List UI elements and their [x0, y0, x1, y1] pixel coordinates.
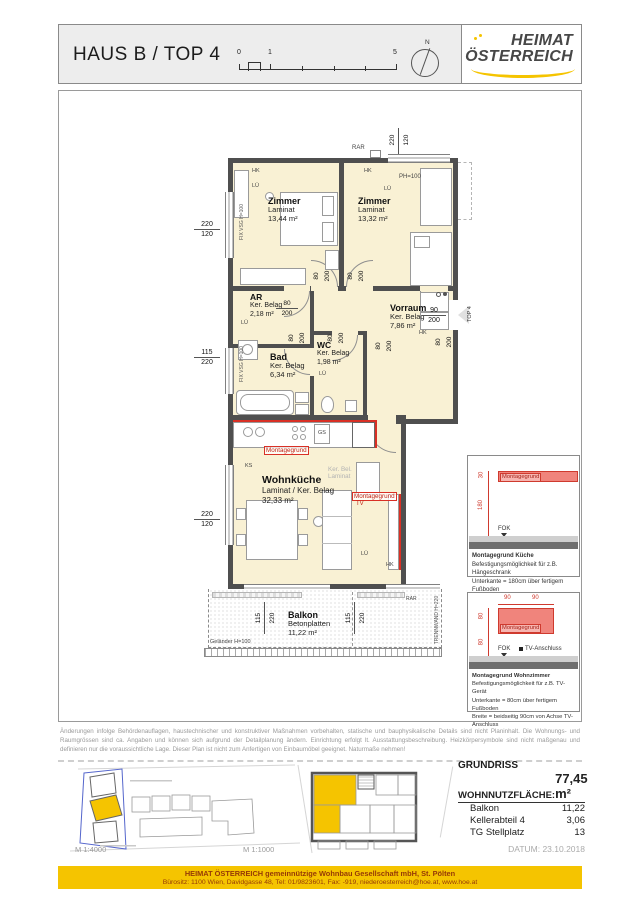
tv-outlet-label: TV-Anschluss	[525, 646, 562, 652]
dim-label: 220	[389, 131, 397, 149]
dim-line	[488, 471, 489, 536]
pillow	[322, 196, 334, 216]
room-label-vorraum: Vorraum Ker. Belag 7,86 m²	[390, 303, 426, 330]
dim-label: 220120	[194, 220, 220, 239]
fok-label: FOK	[498, 526, 510, 532]
dim-label: 220	[359, 609, 367, 627]
sofa-cushion-line	[322, 516, 352, 517]
window	[225, 192, 234, 258]
outlet-symbol	[443, 292, 447, 296]
dim-label: 115	[345, 609, 353, 627]
dim-label: 120	[403, 131, 411, 149]
floor-slab	[469, 662, 578, 669]
dim-label: 90	[504, 595, 511, 601]
dim-label: 80	[478, 639, 484, 646]
summary-row: Balkon11,22	[458, 803, 585, 815]
kitchen-sink	[243, 427, 253, 437]
room-label-wohnkueche: Wohnküche Laminat / Ker. Belag 32,33 m²	[262, 474, 334, 505]
rar-label: RAR	[352, 145, 365, 151]
dim-label: 80	[478, 613, 484, 620]
north-label: N	[425, 39, 430, 46]
neighbor-balcony-outline	[458, 162, 472, 220]
dim-label: 200	[386, 337, 394, 355]
footer-company: HEIMAT ÖSTERREICH gemeinnützige Wohnbau …	[58, 866, 582, 878]
logo-dot	[474, 37, 477, 40]
cabinet	[356, 462, 380, 495]
logo-dot	[479, 34, 482, 37]
montage-bar-label: Montagegrund	[500, 624, 541, 633]
scale-tick	[365, 66, 366, 71]
boundary-line	[440, 766, 453, 837]
balcony-railing	[204, 648, 442, 657]
window	[388, 154, 450, 163]
scale-tick	[239, 64, 240, 69]
dim-label: 80	[288, 329, 296, 347]
hk-label: HK	[386, 562, 394, 568]
washbasin	[295, 404, 309, 415]
dim-label: 80	[327, 329, 335, 347]
scale-tick	[334, 66, 335, 71]
dim-label: 220120	[194, 510, 220, 529]
title-block: HAUS B / TOP 4 0 1 5 N HEIMAT ÖSTERREICH	[58, 24, 582, 84]
ks-label: KS	[245, 463, 252, 469]
key-plan-drawing	[298, 765, 428, 857]
chair	[236, 534, 246, 546]
montage-bar-label: Montagegrund	[500, 473, 541, 482]
sofa-cushion-line	[322, 543, 352, 544]
scale-tick	[270, 64, 271, 69]
dim-label: 200	[358, 267, 366, 285]
montage-line-kitchen	[233, 420, 377, 422]
dim-label: 30	[478, 472, 484, 479]
dim-label: 220	[269, 609, 277, 627]
summary-box: GRUNDRISS WOHNNUTZFLÄCHE: 77,45 m² Balko…	[458, 760, 585, 839]
logo-line2: ÖSTERREICH	[465, 49, 573, 65]
small-basin	[345, 400, 357, 412]
date-label: DATUM: 23.10.2018	[508, 844, 585, 854]
dim-label: 200	[338, 329, 346, 347]
gs-label: GS	[318, 430, 326, 436]
scale-bar: 0 1 5	[239, 43, 404, 73]
railing-note: Geländer H=100	[210, 639, 251, 645]
chair	[298, 508, 308, 520]
disclaimer-text: Änderungen infolge Behördenauflagen, hau…	[60, 727, 580, 754]
entrance-opening	[449, 300, 458, 330]
hk-label: HK	[364, 168, 372, 174]
page-title: HAUS B / TOP 4	[73, 44, 220, 66]
dim-label: 90200	[422, 306, 446, 325]
entrance-marker-label: TOP 4	[466, 302, 474, 326]
scale-step	[248, 62, 261, 71]
north-arrow: N	[407, 39, 443, 79]
montage-line-kitchen-end	[375, 420, 377, 448]
dim-label: 80200	[276, 299, 298, 318]
fridge	[352, 422, 375, 448]
room-label-zimmer2: Zimmer Laminat 13,32 m²	[358, 196, 391, 223]
window-sill	[212, 592, 302, 598]
heimat-logo: HEIMAT ÖSTERREICH	[461, 25, 581, 83]
tv-label: TV	[356, 501, 364, 507]
scale-label-site: M 1:4000	[75, 845, 106, 854]
kitchen-sink	[255, 427, 265, 437]
sideboard	[240, 268, 306, 285]
wall-segment	[363, 331, 367, 417]
plan-sheet: HAUS B / TOP 4 0 1 5 N HEIMAT ÖSTERREICH	[0, 0, 637, 900]
panel-caption: Montagegrund Küche Befestigungsmöglichke…	[472, 552, 578, 595]
site-plan-map	[60, 763, 315, 858]
rar-label: RAR	[406, 596, 417, 602]
room-label-balkon: Balkon Betonplatten 11,22 m²	[288, 610, 330, 637]
dim-label: 200	[446, 333, 454, 351]
stove-burner	[300, 434, 306, 440]
summary-row: Kellerabteil 43,06	[458, 815, 585, 827]
north-circle	[411, 49, 439, 77]
partition-note: TRENNWAND H=220	[433, 589, 441, 651]
scale-baseline	[239, 69, 397, 70]
dim-line	[264, 602, 265, 634]
floor-slab	[469, 542, 578, 549]
bathtub-inner	[240, 394, 290, 411]
hk-label: HK	[419, 330, 427, 336]
logo-line1: HEIMAT	[511, 33, 573, 49]
montage-label-kitchen: Montagegrund	[264, 446, 309, 455]
vent-label: LÜ	[384, 186, 391, 192]
tv-sideboard	[388, 494, 399, 570]
glazing-note: FIX VSG H=100	[238, 196, 246, 248]
stove-burner	[300, 426, 306, 432]
dim-label: 80	[375, 337, 383, 355]
dim-label: 180	[478, 500, 484, 510]
vent-label: LÜ	[241, 320, 248, 326]
window-sill	[357, 592, 405, 598]
dim-label: 200	[324, 267, 332, 285]
washbasin	[295, 392, 309, 403]
tv-outlet-icon	[519, 647, 523, 651]
outlet-symbol	[436, 292, 441, 297]
window	[225, 348, 234, 394]
window	[225, 465, 234, 545]
dim-label: 80	[313, 267, 321, 285]
dim-label: 90	[532, 595, 539, 601]
ph-label: PH=100	[399, 174, 421, 180]
hk-label: HK	[252, 168, 260, 174]
floor-transition-note: Ker. Bel. Laminat	[328, 466, 352, 480]
dining-table	[246, 500, 298, 560]
living-area-row: WOHNNUTZFLÄCHE: 77,45 m²	[458, 771, 585, 803]
room-label-bad: Bad Ker. Belag 6,34 m²	[270, 352, 305, 379]
scale-label-5: 5	[393, 49, 397, 56]
dim-label: 115	[255, 609, 263, 627]
fok-label: FOK	[498, 646, 510, 652]
door-opening	[310, 348, 314, 376]
chair	[298, 534, 308, 546]
vent-label: LÜ	[319, 371, 326, 377]
dim-label: 80	[435, 333, 443, 351]
stove-burner	[292, 426, 298, 432]
dim-line	[398, 128, 399, 154]
wall-segment	[339, 163, 344, 288]
chair	[236, 508, 246, 520]
montage-line-tv	[399, 494, 401, 570]
stove-burner	[292, 434, 298, 440]
dim-line	[498, 604, 554, 605]
scale-label-0: 0	[237, 49, 241, 56]
scale-tick	[302, 66, 303, 71]
dim-line	[488, 608, 489, 656]
panel-caption: Montagegrund Wohnzimmer Befestigungsmögl…	[472, 672, 578, 729]
room-label-zimmer1: Zimmer Laminat 13,44 m²	[268, 196, 301, 223]
montage-label-tv: Montagegrund	[352, 492, 397, 501]
summary-title: GRUNDRISS	[458, 760, 585, 771]
logo-swoosh	[471, 65, 575, 78]
scale-tick	[396, 64, 397, 69]
pillow	[322, 222, 334, 242]
vent-label: LÜ	[252, 183, 259, 189]
dim-label: 200	[299, 329, 307, 347]
footer-bar: HEIMAT ÖSTERREICH gemeinnützige Wohnbau …	[58, 866, 582, 889]
dim-line	[354, 602, 355, 634]
scale-label-keyplan: M 1:1000	[243, 845, 274, 854]
dim-label: 115220	[194, 348, 220, 367]
scale-label-1: 1	[268, 49, 272, 56]
vent-symbol	[370, 150, 381, 158]
pillow	[414, 236, 430, 248]
montage-panel-living: 90 90 Montagegrund 80 80 FOK TV-Anschlus…	[467, 592, 580, 712]
key-plan	[298, 765, 428, 862]
montage-panel-kitchen: Montagegrund 30 180 FOK Montagegrund Küc…	[467, 455, 580, 577]
footer-address: Bürositz: 1100 Wien, Davidgasse 48, Tel:…	[58, 878, 582, 886]
vent-label: LÜ	[361, 551, 368, 557]
summary-row: TG Stellplatz13	[458, 827, 585, 839]
glazing-note: FIX VSG H=100	[238, 338, 246, 390]
dim-label: 80	[347, 267, 355, 285]
toilet	[321, 396, 334, 413]
wardrobe	[420, 168, 452, 226]
